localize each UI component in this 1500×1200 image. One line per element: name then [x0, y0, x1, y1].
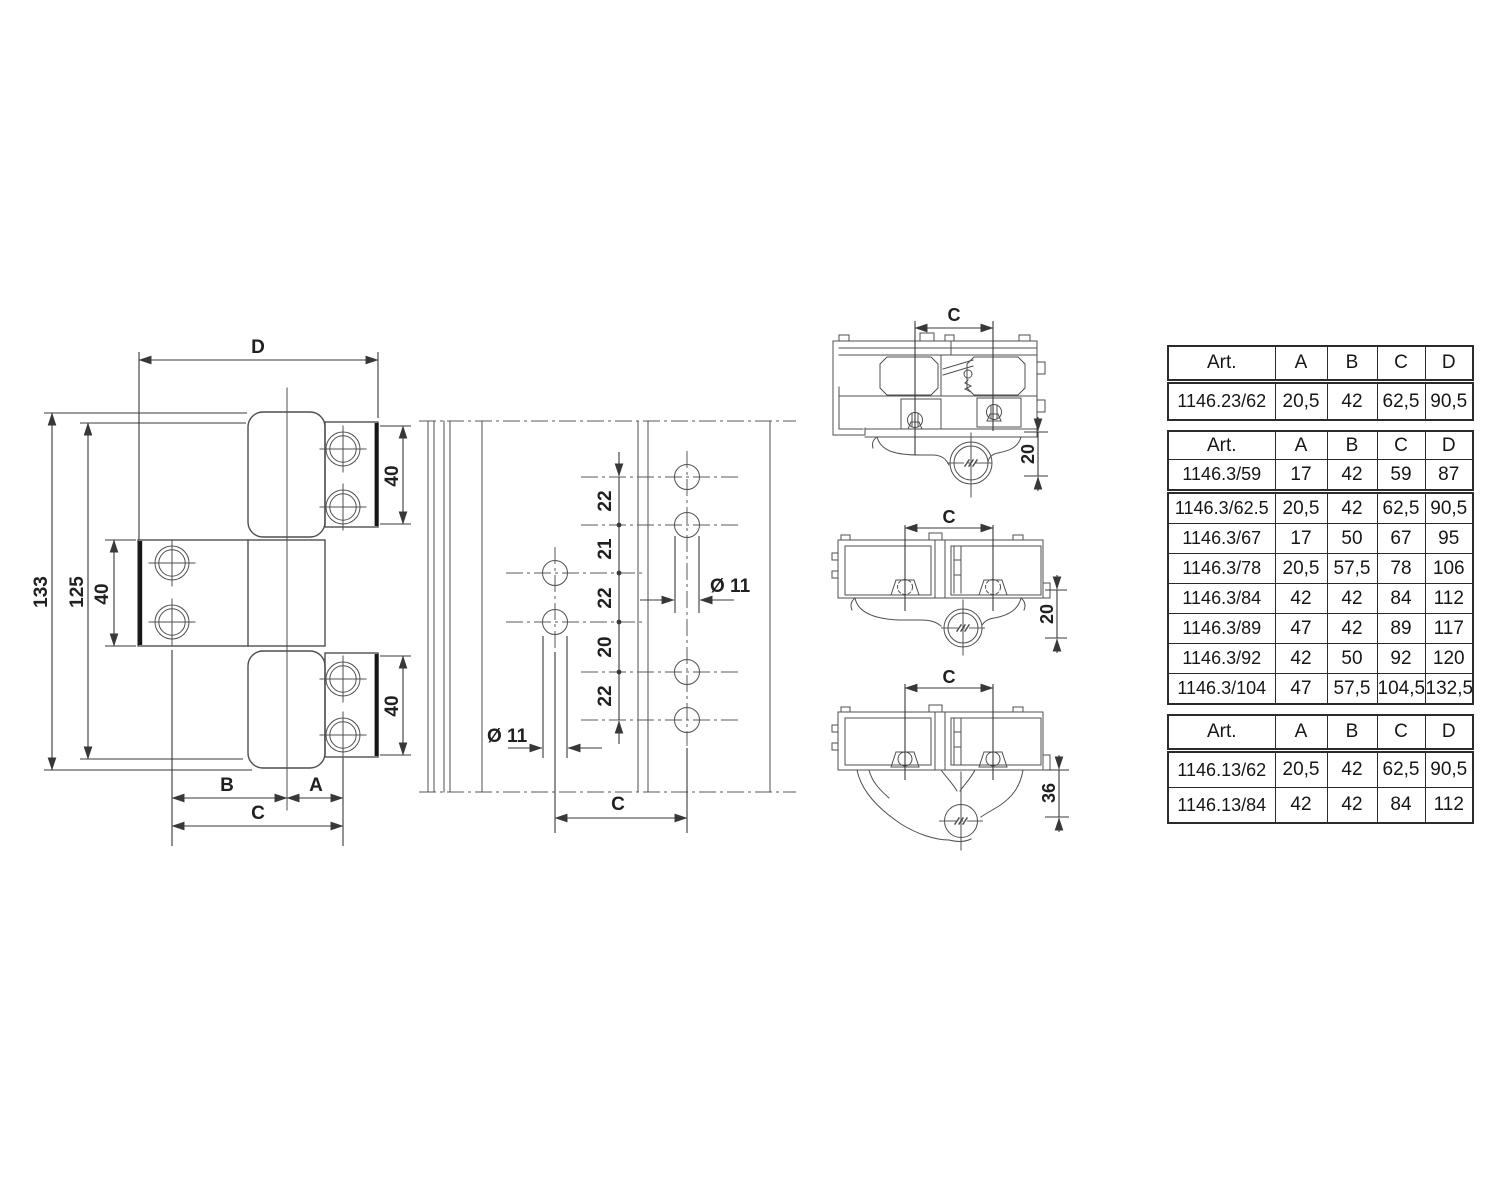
table-cell: 1146.3/67 [1168, 524, 1275, 554]
table-cell: 1146.23/62 [1168, 382, 1275, 421]
table-cell: 1146.3/89 [1168, 614, 1275, 644]
table-row: 1146.23/6220,54262,590,5 [1168, 382, 1473, 421]
hole-pattern-view: 22 21 22 20 22 Ø 11 Ø 11 C [419, 421, 796, 833]
spec-table-1146-3: Art.ABCD1146.3/59174259871146.3/62.520,5… [1167, 430, 1474, 705]
table-cell: 120 [1425, 644, 1473, 674]
column-header: B [1327, 346, 1377, 382]
table-cell: 112 [1425, 584, 1473, 614]
table-cell: 62,5 [1377, 382, 1425, 421]
dim-label-125: 125 [67, 576, 88, 608]
dim-hole-spacing-chain: 22 21 22 20 22 [595, 452, 621, 744]
table-cell: 1146.13/84 [1168, 788, 1275, 824]
dim-label-22-1: 22 [595, 490, 616, 511]
table-cell: 62,5 [1377, 492, 1425, 524]
dim-label-21: 21 [595, 538, 616, 560]
table-cell: 84 [1377, 788, 1425, 824]
table-cell: 1146.13/62 [1168, 751, 1275, 788]
table-cell: 42 [1275, 788, 1327, 824]
dim-b-a-c: B A C [172, 650, 343, 846]
dim-leaf-height-bottom-right: 40 [380, 656, 411, 755]
dim-section1-c: C [915, 305, 993, 455]
dim-label-section1-c: C [948, 305, 961, 325]
dim-label-c2: C [611, 794, 625, 815]
table-row: 1146.3/89474289117 [1168, 614, 1473, 644]
table-row: 1146.13/6220,54262,590,5 [1168, 751, 1473, 788]
dim-label-40-left: 40 [92, 583, 113, 604]
table-cell: 117 [1425, 614, 1473, 644]
table-cell: 42 [1327, 492, 1377, 524]
table-header-row: Art.ABCD [1168, 715, 1473, 751]
dim-label-a: A [309, 775, 323, 796]
table-cell: 42 [1327, 788, 1377, 824]
table-cell: 50 [1327, 524, 1377, 554]
table-cell: 90,5 [1425, 492, 1473, 524]
table-row: 1146.3/84424284112 [1168, 584, 1473, 614]
column-header: D [1425, 431, 1473, 460]
dim-label-c: C [251, 803, 265, 824]
dim-label-20: 20 [595, 636, 616, 657]
table-cell: 20,5 [1275, 382, 1327, 421]
column-header: Art. [1168, 346, 1275, 382]
dim-label-40-top-right: 40 [382, 465, 403, 486]
table-cell: 95 [1425, 524, 1473, 554]
spec-table-1146-13: Art.ABCD1146.13/6220,54262,590,51146.13/… [1167, 714, 1474, 824]
table-cell: 42 [1327, 382, 1377, 421]
table-cell: 17 [1275, 524, 1327, 554]
column-header: D [1425, 346, 1473, 382]
table-cell: 89 [1377, 614, 1425, 644]
table-header-row: Art.ABCD [1168, 346, 1473, 382]
table-cell: 42 [1327, 584, 1377, 614]
table-cell: 57,5 [1327, 554, 1377, 584]
table-cell: 1146.3/62.5 [1168, 492, 1275, 524]
dim-overall-width: D [139, 337, 378, 540]
table-row: 1146.3/5917425987 [1168, 460, 1473, 492]
table-row: 1146.3/1044757,5104,5132,5 [1168, 674, 1473, 705]
column-header: A [1275, 715, 1327, 751]
table-cell: 47 [1275, 674, 1327, 705]
table-cell: 1146.3/59 [1168, 460, 1275, 492]
table-row: 1146.13/84424284112 [1168, 788, 1473, 824]
table-cell: 112 [1425, 788, 1473, 824]
table-cell: 62,5 [1377, 751, 1425, 788]
dim-label-133: 133 [31, 576, 52, 608]
table-row: 1146.3/7820,557,578106 [1168, 554, 1473, 584]
table-header-row: Art.ABCD [1168, 431, 1473, 460]
table-cell: 42 [1327, 614, 1377, 644]
table-cell: 47 [1275, 614, 1327, 644]
table-row: 1146.3/62.520,54262,590,5 [1168, 492, 1473, 524]
dim-label-dia11-right: Ø 11 [710, 576, 751, 597]
dim-leaf-height-left: 40 [92, 540, 136, 646]
table-cell: 106 [1425, 554, 1473, 584]
column-header: B [1327, 715, 1377, 751]
hinge-drawings: D 133 125 40 40 [0, 0, 1160, 1200]
top-leaf [248, 412, 378, 537]
table-cell: 17 [1275, 460, 1327, 492]
dim-label-section2-c: C [943, 507, 956, 527]
hole-centerlines [506, 451, 741, 746]
column-header: Art. [1168, 431, 1275, 460]
dim-hole-diameter-left: Ø 11 [487, 636, 602, 758]
dim-label-40-bottom-right: 40 [382, 695, 403, 716]
table-cell: 67 [1377, 524, 1425, 554]
dim-label-section1-20: 20 [1018, 444, 1038, 464]
table-cell: 104,5 [1377, 674, 1425, 705]
dim-label-d: D [251, 337, 265, 358]
table-cell: 20,5 [1275, 554, 1327, 584]
table-cell: 90,5 [1425, 751, 1473, 788]
table-cell: 20,5 [1275, 492, 1327, 524]
table-cell: 59 [1377, 460, 1425, 492]
hinge-front-view: D 133 125 40 40 [31, 337, 411, 846]
column-header: Art. [1168, 715, 1275, 751]
profile-cross-section-2: C 20 [832, 507, 1067, 655]
table-row: 1146.3/6717506795 [1168, 524, 1473, 554]
dim-label-dia11-left: Ø 11 [487, 726, 528, 747]
dim-label-22-2: 22 [595, 587, 616, 608]
profile-cross-section-1: C 20 [833, 305, 1048, 497]
table-cell: 78 [1377, 554, 1425, 584]
column-header: B [1327, 431, 1377, 460]
technical-drawing-page: D 133 125 40 40 [0, 0, 1500, 1200]
dim-hole-diameter-right: Ø 11 [640, 536, 751, 613]
column-header: A [1275, 431, 1327, 460]
table-cell: 90,5 [1425, 382, 1473, 421]
table-row: 1146.3/92425092120 [1168, 644, 1473, 674]
table-cell: 1146.3/84 [1168, 584, 1275, 614]
dim-label-section2-20: 20 [1037, 604, 1057, 624]
column-header: A [1275, 346, 1327, 382]
dim-label-section3-36: 36 [1039, 783, 1059, 803]
dim-label-section3-c: C [943, 667, 956, 687]
table-cell: 87 [1425, 460, 1473, 492]
table-cell: 20,5 [1275, 751, 1327, 788]
profile-cross-section-3: C 36 [832, 667, 1069, 850]
dim-label-b: B [220, 775, 234, 796]
dim-label-22-3: 22 [595, 685, 616, 706]
table-cell: 92 [1377, 644, 1425, 674]
table-cell: 50 [1327, 644, 1377, 674]
column-header: C [1377, 346, 1425, 382]
column-header: C [1377, 431, 1425, 460]
table-cell: 57,5 [1327, 674, 1377, 705]
middle-leaf [138, 540, 325, 646]
table-cell: 84 [1377, 584, 1425, 614]
dim-leaf-height-top-right: 40 [380, 426, 411, 524]
table-cell: 42 [1275, 644, 1327, 674]
table-cell: 1146.3/104 [1168, 674, 1275, 705]
spec-table-1146-23: Art.ABCD1146.23/6220,54262,590,5 [1167, 345, 1474, 421]
table-cell: 132,5 [1425, 674, 1473, 705]
dim-hole-columns-c: C [555, 652, 687, 833]
bottom-leaf [248, 651, 378, 768]
table-cell: 42 [1327, 460, 1377, 492]
column-header: D [1425, 715, 1473, 751]
mounting-holes [543, 465, 700, 733]
dim-section1-offset: 20 [1018, 417, 1048, 491]
table-cell: 1146.3/92 [1168, 644, 1275, 674]
column-header: C [1377, 715, 1425, 751]
table-cell: 1146.3/78 [1168, 554, 1275, 584]
table-cell: 42 [1275, 584, 1327, 614]
table-cell: 42 [1327, 751, 1377, 788]
